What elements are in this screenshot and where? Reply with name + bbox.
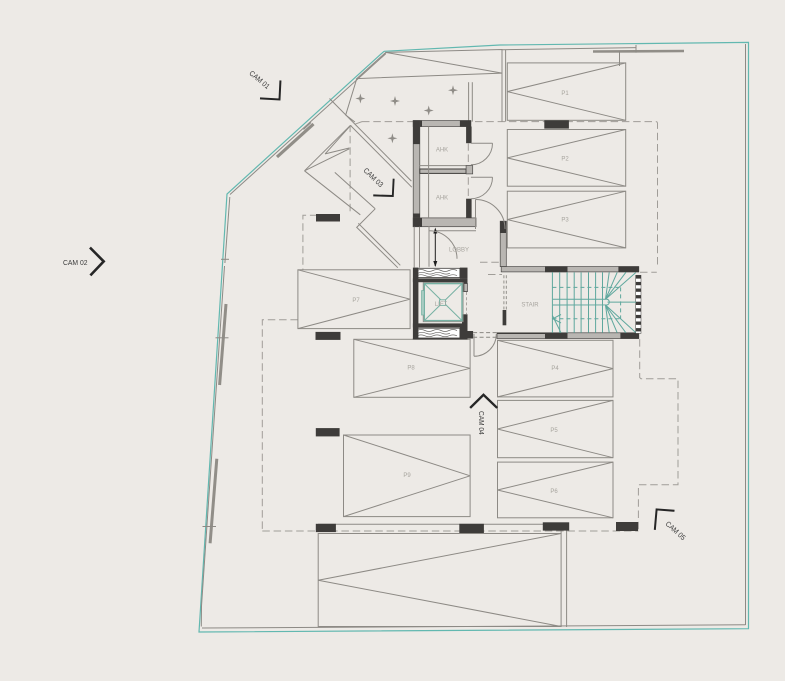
svg-text:P7: P7	[352, 298, 360, 304]
svg-text:LOBBY: LOBBY	[449, 248, 469, 254]
svg-text:P1: P1	[561, 91, 569, 97]
svg-text:AHK: AHK	[436, 148, 448, 154]
svg-text:P3: P3	[561, 218, 569, 224]
svg-text:P5: P5	[550, 428, 558, 434]
svg-text:P4: P4	[551, 366, 559, 372]
svg-text:P9: P9	[403, 473, 411, 479]
svg-text:CAM 04: CAM 04	[477, 411, 486, 435]
svg-text:STAIR: STAIR	[521, 303, 539, 309]
svg-text:P8: P8	[407, 366, 415, 372]
svg-text:P6: P6	[550, 489, 558, 495]
svg-text:AHK: AHK	[436, 196, 448, 202]
svg-text:CAM 02: CAM 02	[63, 258, 88, 267]
svg-text:P2: P2	[561, 157, 569, 163]
svg-text:LIFT: LIFT	[435, 302, 448, 308]
